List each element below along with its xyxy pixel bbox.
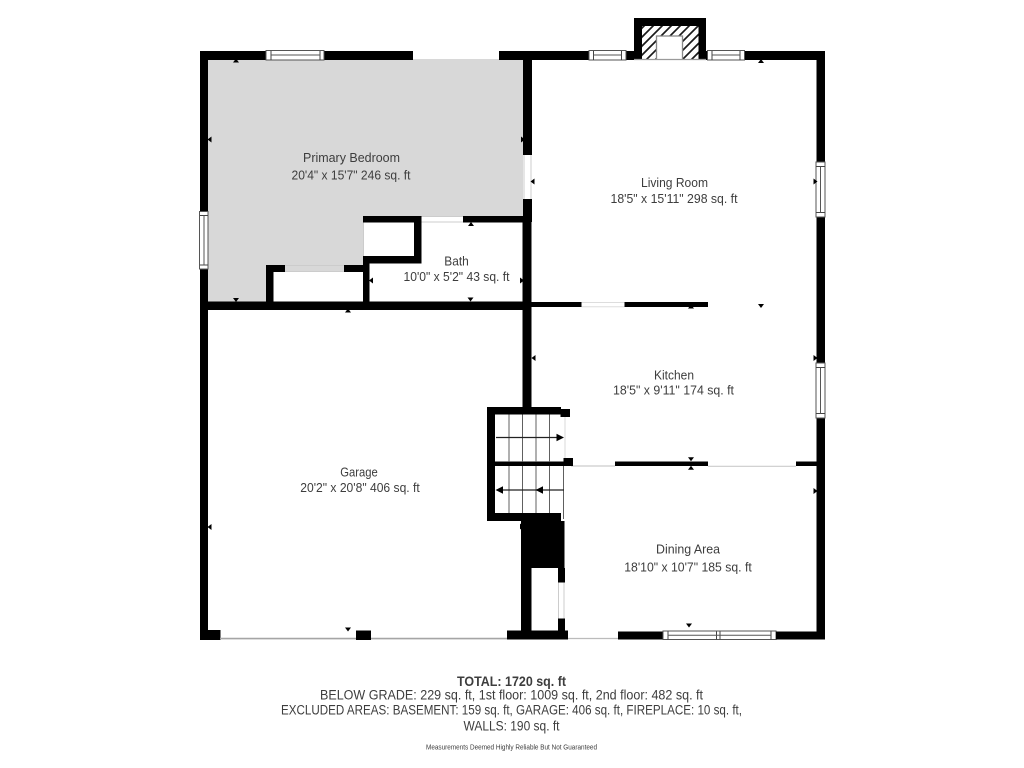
svg-text:WALLS: 190 sq. ft: WALLS: 190 sq. ft xyxy=(464,719,560,734)
svg-text:18'5" x 9'11" 174 sq. ft: 18'5" x 9'11" 174 sq. ft xyxy=(613,383,734,398)
svg-text:Living Room: Living Room xyxy=(641,175,708,190)
svg-text:Garage: Garage xyxy=(340,465,378,480)
svg-text:10'0" x 5'2" 43 sq. ft: 10'0" x 5'2" 43 sq. ft xyxy=(404,269,510,284)
svg-text:18'5" x 15'11" 298 sq. ft: 18'5" x 15'11" 298 sq. ft xyxy=(611,191,738,206)
svg-text:Bath: Bath xyxy=(444,254,469,269)
svg-text:18'10" x 10'7" 185 sq. ft: 18'10" x 10'7" 185 sq. ft xyxy=(624,560,752,575)
svg-text:20'2" x 20'8" 406 sq. ft: 20'2" x 20'8" 406 sq. ft xyxy=(300,480,420,495)
svg-text:EXCLUDED AREAS: BASEMENT: 159: EXCLUDED AREAS: BASEMENT: 159 sq. ft, GA… xyxy=(281,703,742,718)
svg-text:BELOW GRADE: 229 sq. ft, 1st f: BELOW GRADE: 229 sq. ft, 1st floor: 1009… xyxy=(320,688,703,703)
svg-text:Dining Area: Dining Area xyxy=(656,542,721,557)
svg-text:Kitchen: Kitchen xyxy=(654,368,694,383)
svg-text:Primary Bedroom: Primary Bedroom xyxy=(303,150,400,165)
svg-text:20'4" x 15'7" 246 sq. ft: 20'4" x 15'7" 246 sq. ft xyxy=(292,168,411,183)
svg-text:Measurements Deemed Highly Rel: Measurements Deemed Highly Reliable But … xyxy=(426,743,597,752)
